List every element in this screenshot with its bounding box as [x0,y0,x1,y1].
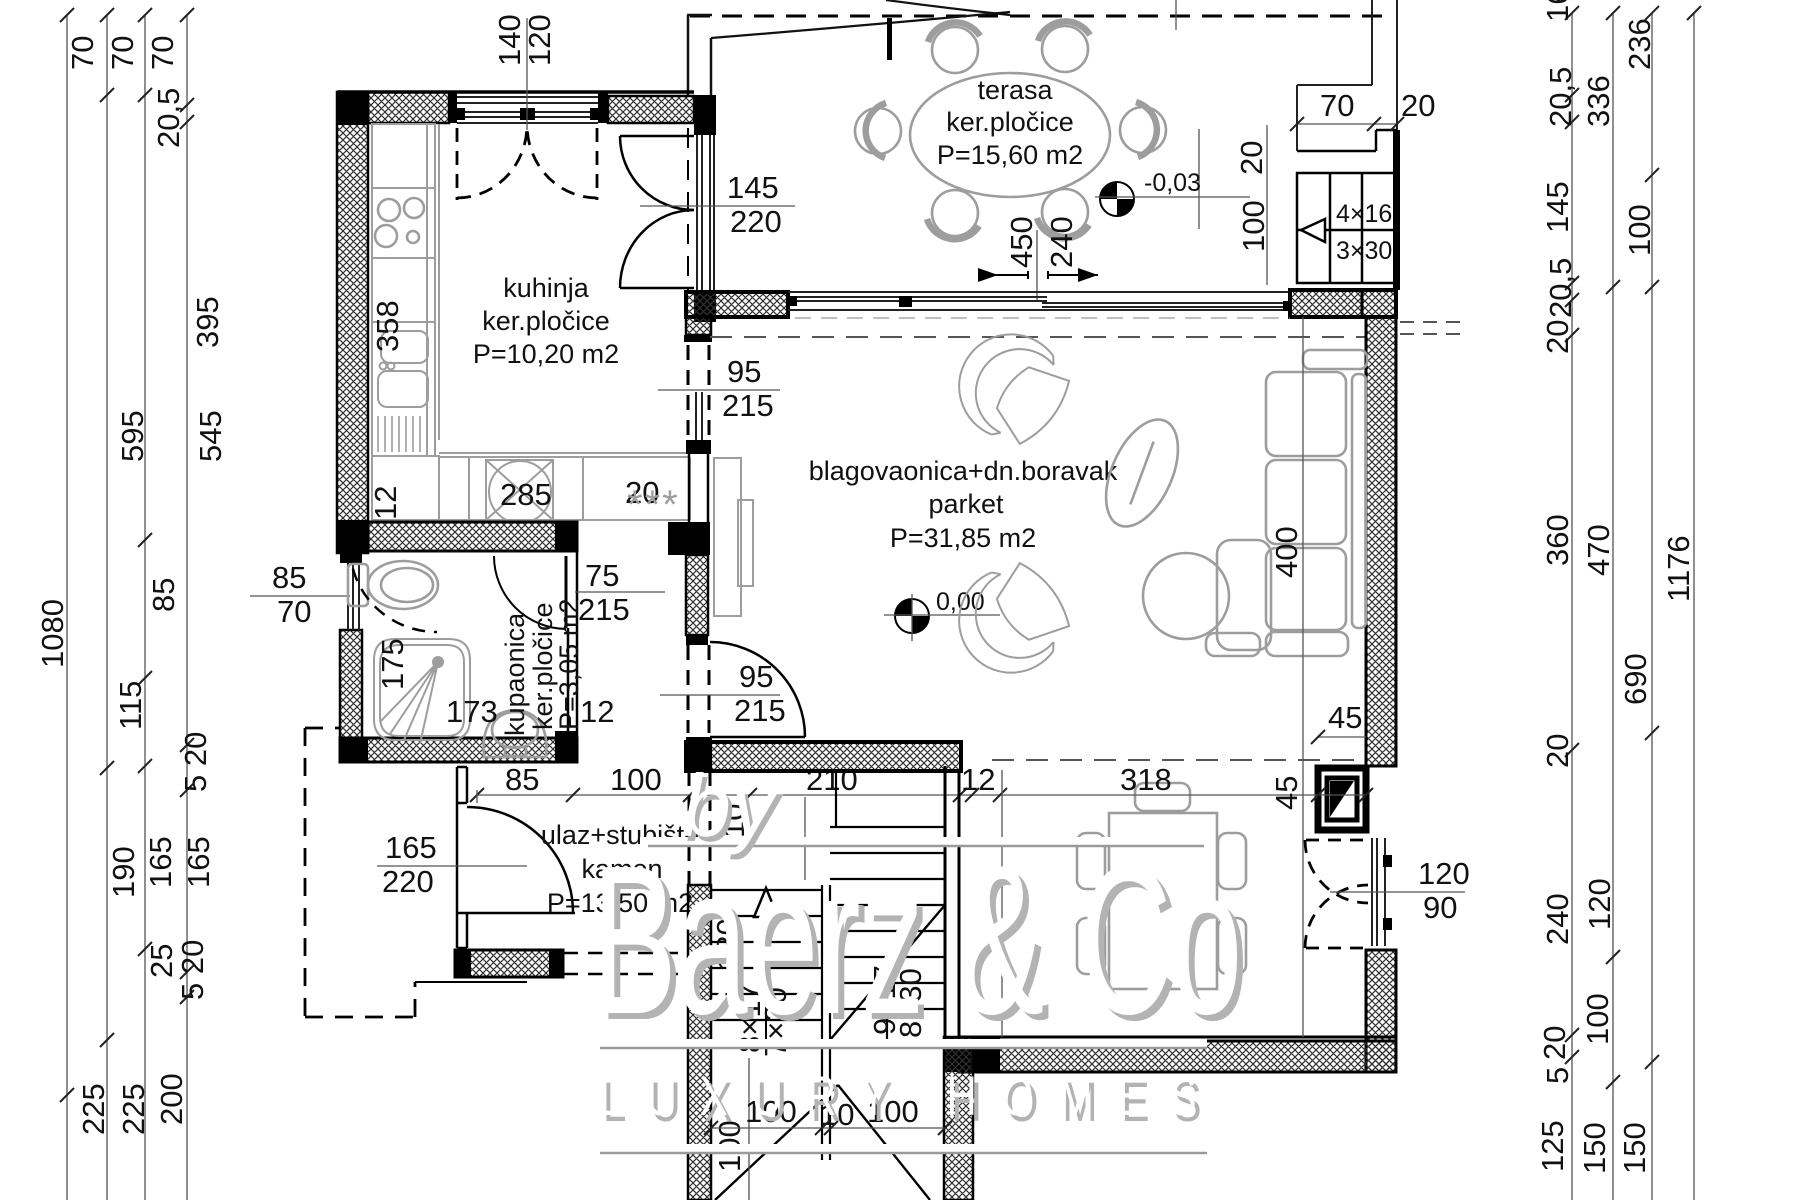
svg-text:LUXURY HOMES: LUXURY HOMES [598,1065,1220,1127]
svg-text:-0,03: -0,03 [1144,169,1201,197]
svg-text:P=3,05 m2: P=3,05 m2 [554,599,584,730]
svg-text:70: 70 [277,594,311,629]
svg-text:4×16: 4×16 [1336,200,1392,228]
svg-text:120: 120 [1418,856,1470,891]
svg-text:358: 358 [370,300,405,352]
svg-text:P=31,85 m2: P=31,85 m2 [890,523,1036,553]
svg-text:***: *** [627,483,680,527]
svg-text:690: 690 [1618,653,1653,705]
svg-text:kupaonica: kupaonica [500,612,530,736]
svg-text:3×30: 3×30 [1336,237,1392,265]
svg-text:ker.pločice: ker.pločice [482,306,610,336]
svg-text:400: 400 [1269,526,1304,578]
svg-text:165: 165 [385,830,437,865]
svg-text:20: 20 [1540,320,1575,354]
svg-text:190: 190 [106,846,141,898]
svg-text:165: 165 [181,836,216,888]
svg-text:kuhinja: kuhinja [503,273,590,303]
svg-text:5 20: 5 20 [175,940,210,1000]
svg-text:5 20: 5 20 [178,732,213,792]
svg-text:20,5: 20,5 [151,88,186,148]
svg-text:360: 360 [1540,514,1575,566]
svg-text:terasa: terasa [977,75,1053,105]
svg-text:215: 215 [722,388,774,423]
svg-text:220: 220 [382,864,434,899]
svg-text:12: 12 [368,486,403,520]
svg-text:90: 90 [1423,890,1457,925]
svg-text:285: 285 [500,477,552,512]
svg-text:70: 70 [145,36,180,70]
svg-text:145: 145 [727,170,779,205]
svg-text:240: 240 [1540,893,1575,945]
svg-text:85: 85 [505,762,539,797]
svg-text:173: 173 [446,694,498,729]
svg-text:100: 100 [1236,200,1271,252]
svg-text:115: 115 [113,681,148,730]
svg-text:75: 75 [585,558,619,593]
svg-text:100: 100 [610,762,662,797]
svg-text:95: 95 [739,659,773,694]
svg-text:45: 45 [1328,700,1362,735]
svg-text:25: 25 [144,944,179,978]
svg-text:100: 100 [1622,204,1657,256]
svg-text:236: 236 [1622,18,1657,70]
svg-text:1080: 1080 [35,599,70,668]
svg-text:336: 336 [1581,75,1616,127]
svg-text:95: 95 [727,354,761,389]
svg-text:70: 70 [65,36,100,70]
svg-text:70: 70 [105,36,140,70]
svg-text:240: 240 [1044,216,1079,268]
svg-text:150: 150 [1617,1122,1652,1174]
svg-text:12: 12 [580,694,614,729]
svg-text:450: 450 [1004,216,1039,268]
svg-text:20: 20 [1540,734,1575,768]
svg-text:ker.pločice: ker.pločice [946,107,1074,137]
svg-text:150: 150 [1577,1122,1612,1174]
svg-text:200: 200 [154,1073,189,1125]
svg-text:45: 45 [1269,776,1304,810]
svg-text:20,5: 20,5 [1543,258,1578,318]
svg-text:220: 220 [730,204,782,239]
svg-text:20: 20 [1537,1026,1572,1060]
svg-text:Baerz & Co: Baerz & Co [592,823,1242,1059]
svg-text:175: 175 [375,638,410,690]
svg-text:P=15,60 m2: P=15,60 m2 [937,140,1083,170]
svg-text:595: 595 [115,410,150,462]
svg-text:545: 545 [193,410,228,462]
svg-text:120: 120 [1582,878,1617,930]
svg-text:parket: parket [928,489,1004,519]
svg-text:20: 20 [1401,88,1435,123]
svg-text:85: 85 [272,560,306,595]
svg-text:145: 145 [1540,181,1575,233]
svg-text:blagovaonica+dn.boravak: blagovaonica+dn.boravak [809,456,1118,486]
svg-text:P=10,20 m2: P=10,20 m2 [473,339,619,369]
svg-text:215: 215 [578,592,630,627]
svg-text:165: 165 [143,836,178,888]
svg-text:20,5: 20,5 [1543,67,1578,127]
svg-text:225: 225 [76,1083,111,1135]
svg-text:318: 318 [1120,762,1172,797]
svg-text:225: 225 [116,1083,151,1135]
svg-text:215: 215 [734,693,786,728]
svg-text:100: 100 [1580,993,1615,1045]
svg-text:12: 12 [961,762,995,797]
svg-text:1176: 1176 [1661,535,1696,602]
svg-text:5: 5 [1540,1067,1575,1084]
svg-text:395: 395 [190,296,225,348]
svg-text:16: 16 [1540,0,1575,22]
svg-text:125: 125 [1535,1120,1570,1172]
svg-text:470: 470 [1581,524,1616,576]
svg-text:70: 70 [1320,88,1354,123]
svg-text:20: 20 [1234,141,1269,175]
svg-text:85: 85 [146,578,181,612]
